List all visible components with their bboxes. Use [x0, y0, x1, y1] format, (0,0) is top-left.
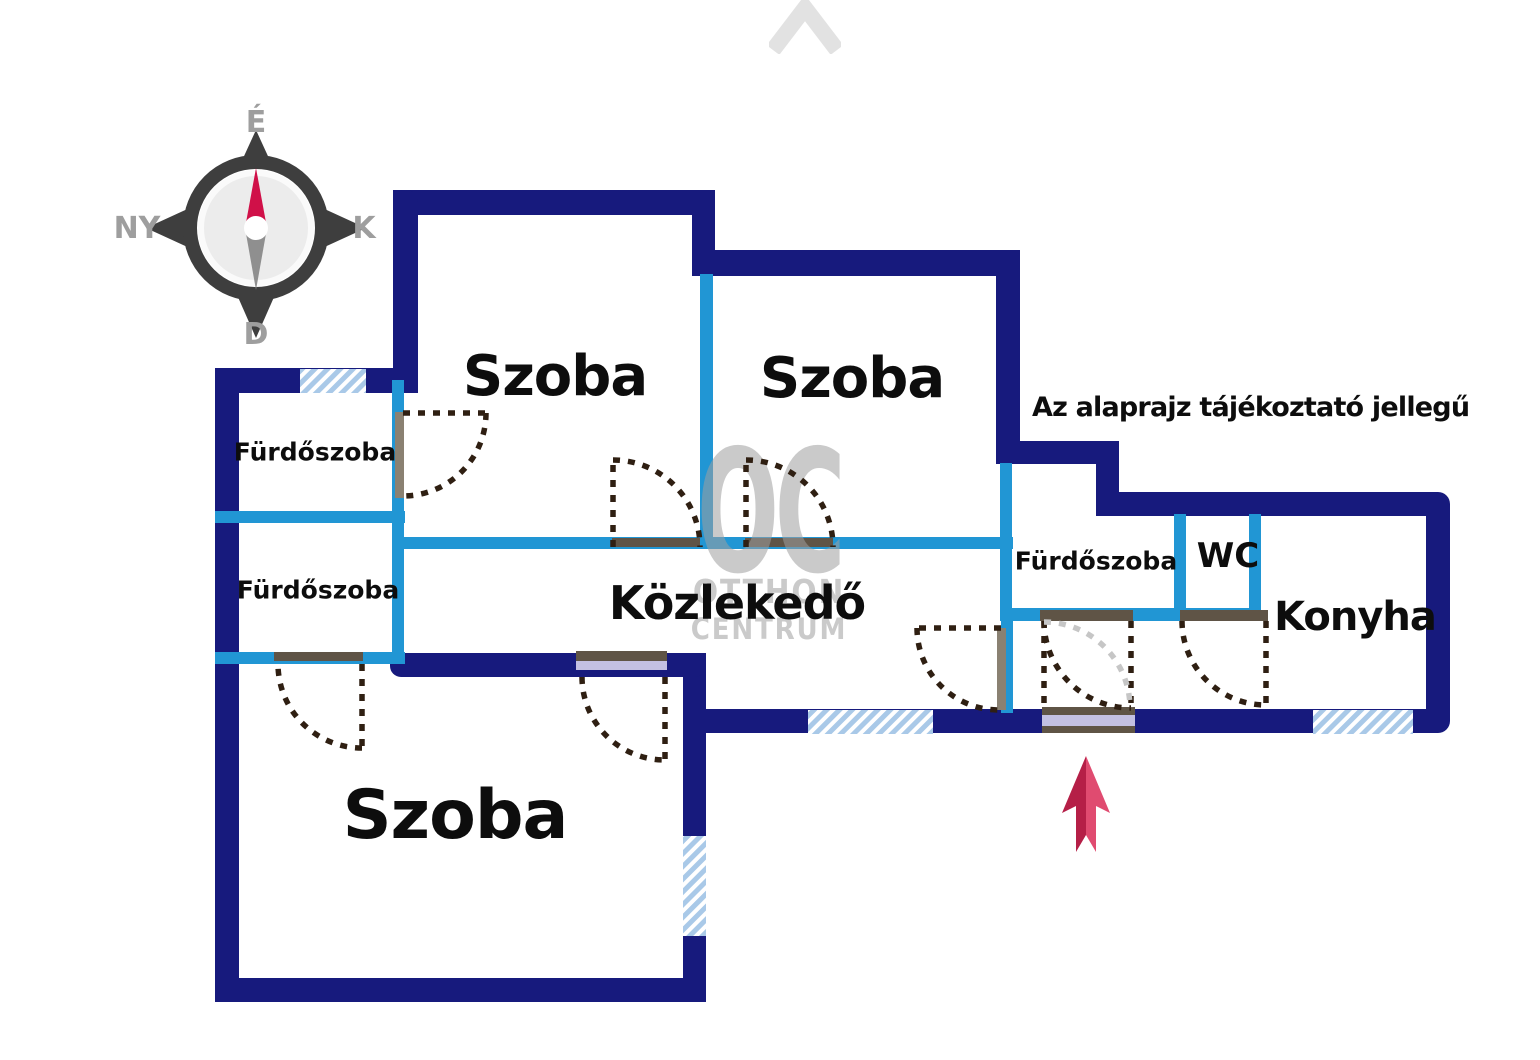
room-label-kozlekedo: Közlekedő	[609, 580, 865, 626]
door-furdoszoba3	[1044, 621, 1131, 709]
door-arc	[278, 664, 362, 748]
door-arc	[917, 628, 999, 710]
door-arc	[403, 413, 486, 496]
door-wc	[1182, 621, 1266, 705]
room-label-szoba-bottom: Szoba	[343, 782, 568, 850]
disclaimer-text: Az alaprajz tájékoztató jellegű	[1032, 392, 1469, 424]
door-szoba1-left	[403, 413, 486, 496]
compass-hub	[244, 216, 268, 240]
floor-plan-canvas: OC OTTHON CENTRUM	[0, 0, 1540, 1060]
door-arc	[613, 460, 700, 547]
room-label-furdoszoba-right: Fürdőszoba	[1015, 549, 1177, 574]
compass-label-north: É	[246, 104, 267, 140]
door-szoba2-bottom	[746, 460, 833, 547]
compass-rose: É NY K D	[114, 104, 378, 352]
compass-label-south: D	[244, 317, 269, 352]
door-kozlekedo-szoba3	[582, 677, 665, 760]
compass-label-west: NY	[114, 211, 162, 246]
room-label-szoba-top-right: Szoba	[760, 351, 944, 407]
door-furdoszoba2-szoba3	[278, 664, 362, 748]
room-label-wc: WC	[1197, 539, 1259, 573]
door-szoba1-bottom	[613, 460, 700, 547]
room-label-konyha: Konyha	[1274, 597, 1436, 637]
entrance-arrow-icon	[1062, 756, 1110, 852]
floor-plan-symbol-layer: É NY K D	[0, 0, 1540, 1060]
room-label-furdoszoba-upper-left: Fürdőszoba	[234, 440, 396, 465]
door-arc	[582, 677, 665, 760]
door-arc	[1182, 621, 1266, 705]
door-arc	[746, 460, 833, 547]
room-label-furdoszoba-lower-left: Fürdőszoba	[237, 578, 399, 603]
room-label-szoba-top-left: Szoba	[463, 349, 647, 405]
compass-label-east: K	[352, 211, 377, 246]
entrance-arrow-left-half	[1062, 756, 1086, 852]
door-corridor	[917, 628, 1001, 710]
entrance-arrow-right-half	[1086, 756, 1110, 852]
